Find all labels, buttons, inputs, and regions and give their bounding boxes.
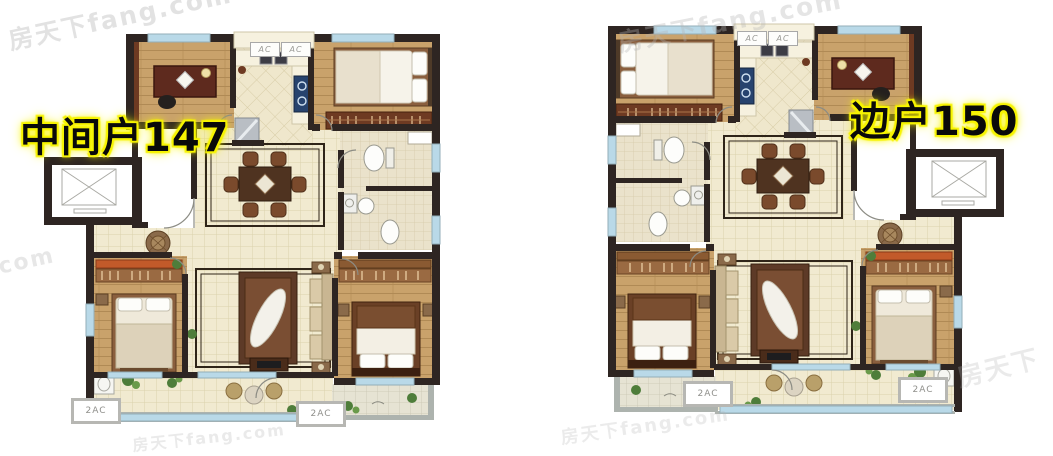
unit-title-edge: 边户150	[850, 102, 1019, 142]
elevator	[906, 149, 1004, 217]
entry-round-table	[878, 223, 902, 247]
bedroom-right-furniture	[614, 252, 710, 368]
floorplan-right	[600, 0, 1012, 426]
ac-label: AC	[281, 42, 311, 57]
plan-graphics	[44, 32, 440, 422]
ac-label: AC	[737, 31, 767, 46]
floorplan-left-svg	[36, 6, 448, 434]
ac2-label: 2AC	[683, 381, 733, 407]
entry-round-table	[146, 231, 170, 255]
elevator	[44, 157, 142, 225]
ac2-label: 2AC	[898, 377, 948, 403]
bedroom-top-furniture	[615, 40, 722, 121]
ac2-label: 2AC	[296, 401, 346, 427]
ac-label: AC	[250, 42, 280, 57]
floorplan-right-svg	[600, 0, 1012, 426]
floorplan-page: 中间户147 边户150 AC AC AC AC 2AC 2AC 2AC 2AC…	[0, 0, 1053, 449]
floorplan-left	[36, 6, 448, 434]
unit-title-middle: 中间户147	[20, 118, 230, 158]
ac-label: AC	[768, 31, 798, 46]
bedroom-right-furniture	[338, 260, 434, 376]
bedroom-top-furniture	[326, 48, 433, 129]
plan-graphics	[608, 24, 1004, 414]
ac2-label: 2AC	[71, 398, 121, 424]
